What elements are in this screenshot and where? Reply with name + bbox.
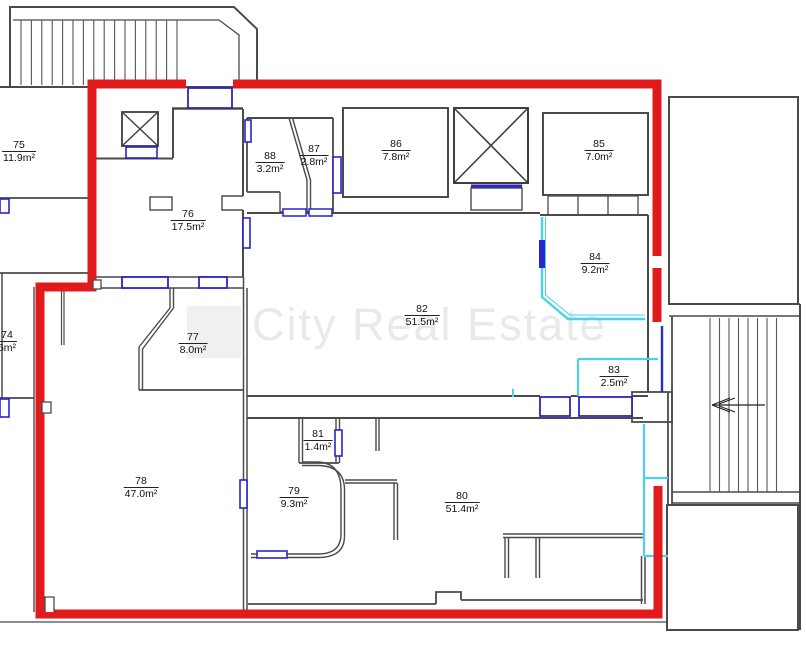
room-label-83: 83 2.5m² (600, 364, 629, 390)
staircase-top-left-icon (10, 7, 257, 86)
room-label-84: 84 9.2m² (581, 251, 610, 277)
staircase-top-left-treads (21, 20, 177, 85)
room-area: 9.3m² (280, 498, 309, 510)
room-number: 75 (2, 139, 36, 152)
room-area: 2.5m² (600, 377, 629, 389)
room-number: 78 (124, 475, 159, 488)
room-area: 9.2m² (581, 264, 610, 276)
room-number: 82 (405, 303, 440, 316)
room-area: 47.0m² (124, 488, 159, 500)
walls (0, 7, 800, 630)
room-label-79: 79 9.3m² (280, 485, 309, 511)
elevator-icon-large (454, 108, 528, 183)
room-area: 6m² (0, 342, 17, 354)
room-number: 85 (585, 138, 614, 151)
room-number: 74 (0, 329, 17, 342)
room-label-75: 75 11.9m² (2, 139, 36, 165)
room-area: 7.8m² (382, 151, 411, 163)
floor-plan-drawing (0, 0, 806, 654)
door-jambs (42, 280, 101, 612)
room-label-85: 85 7.0m² (585, 138, 614, 164)
room-label-88: 88 3.2m² (256, 150, 285, 176)
room-label-78: 78 47.0m² (124, 475, 159, 501)
room-label-81: 81 1.4m² (304, 428, 333, 454)
room-area: 17.5m² (171, 221, 206, 233)
room-number: 86 (382, 138, 411, 151)
room-label-86: 86 7.8m² (382, 138, 411, 164)
room-number: 87 (300, 143, 329, 156)
room-number: 83 (600, 364, 629, 377)
floor-plan-image: City Real Estate (0, 0, 806, 654)
room-number: 84 (581, 251, 610, 264)
room-number: 80 (445, 490, 480, 503)
room-area: 3.2m² (256, 163, 285, 175)
elevator-icon-small (122, 112, 158, 146)
room-number: 77 (179, 331, 208, 344)
room-number: 81 (304, 428, 333, 441)
room-label-74: 74 6m² (0, 329, 17, 355)
room-label-76: 76 17.5m² (171, 208, 206, 234)
room-area: 8.0m² (179, 344, 208, 356)
room-area: 7.0m² (585, 151, 614, 163)
room-number: 79 (280, 485, 309, 498)
room-number: 88 (256, 150, 285, 163)
room-area: 11.9m² (2, 152, 36, 164)
room-area: 51.5m² (405, 316, 440, 328)
room-label-80: 80 51.4m² (445, 490, 480, 516)
room-area: 51.4m² (445, 503, 480, 515)
room-number: 76 (171, 208, 206, 221)
room-label-87: 87 2.8m² (300, 143, 329, 169)
room-area: 2.8m² (300, 156, 329, 168)
room-area: 1.4m² (304, 441, 333, 453)
room-label-77: 77 8.0m² (179, 331, 208, 357)
room-label-82: 82 51.5m² (405, 303, 440, 329)
